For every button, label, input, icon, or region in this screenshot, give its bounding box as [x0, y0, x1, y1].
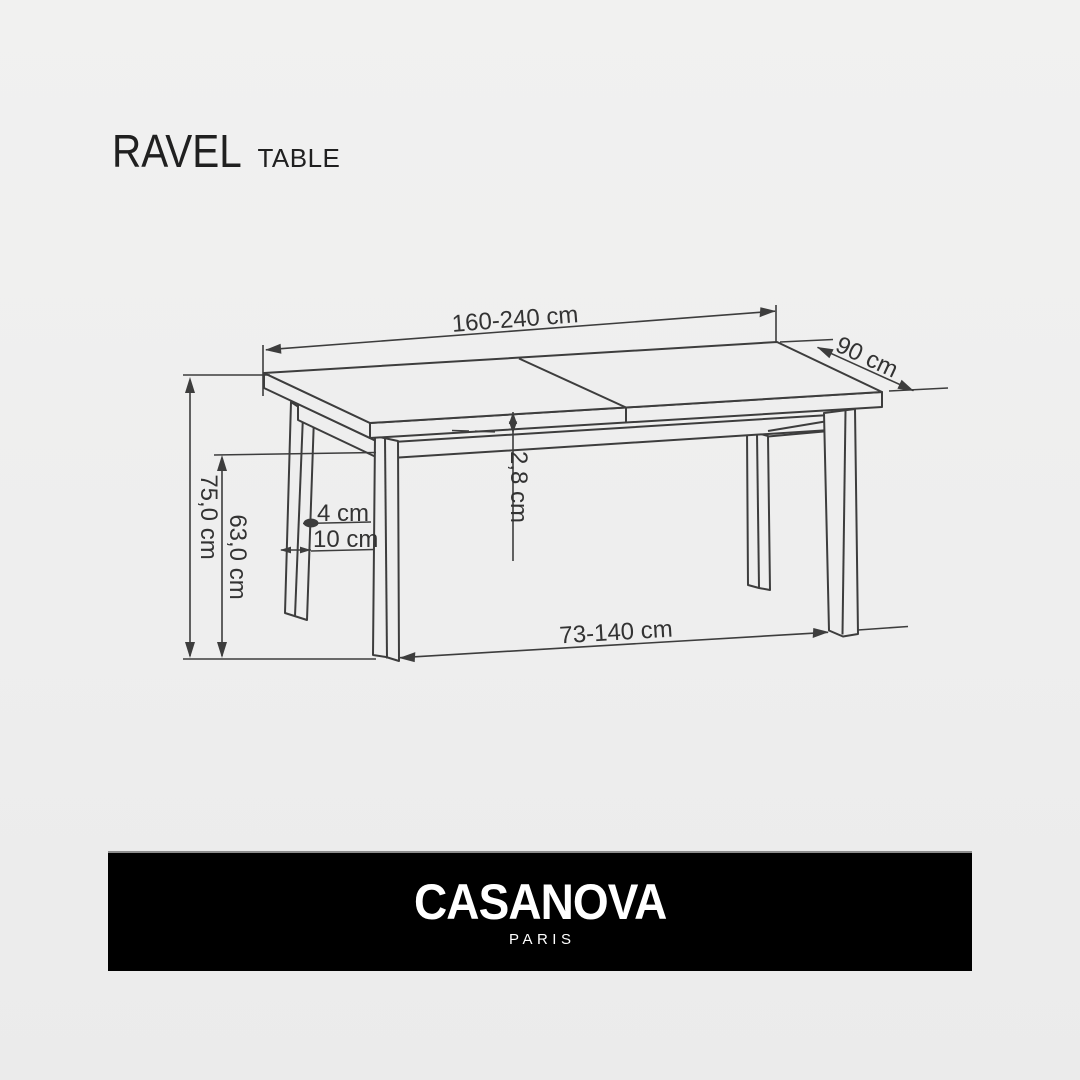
product-dimension-sheet: RAVEL TABLE	[0, 0, 1080, 1080]
table-rear-left-leg	[285, 402, 314, 620]
dim-top-thickness-label: 2,8 cm	[505, 451, 532, 523]
brand-city: PARIS	[505, 931, 576, 948]
dim-leg-width: 4 cm	[303, 500, 371, 528]
dim-leg-span-label: 73-140 cm	[559, 616, 674, 650]
brand-name: CASANOVA	[414, 877, 666, 927]
table-front-right-leg	[824, 409, 858, 637]
dim-leg-depth-label: 10 cm	[313, 526, 378, 553]
dim-length-label: 160-240 cm	[451, 301, 579, 338]
dim-leg-width-label: 4 cm	[317, 500, 369, 527]
dim-height-label: 75,0 cm	[195, 474, 222, 559]
brand-banner: CASANOVA PARIS	[108, 851, 972, 971]
table-rear-right-leg	[747, 430, 770, 590]
dim-apron-clearance-label: 63,0 cm	[224, 514, 251, 599]
